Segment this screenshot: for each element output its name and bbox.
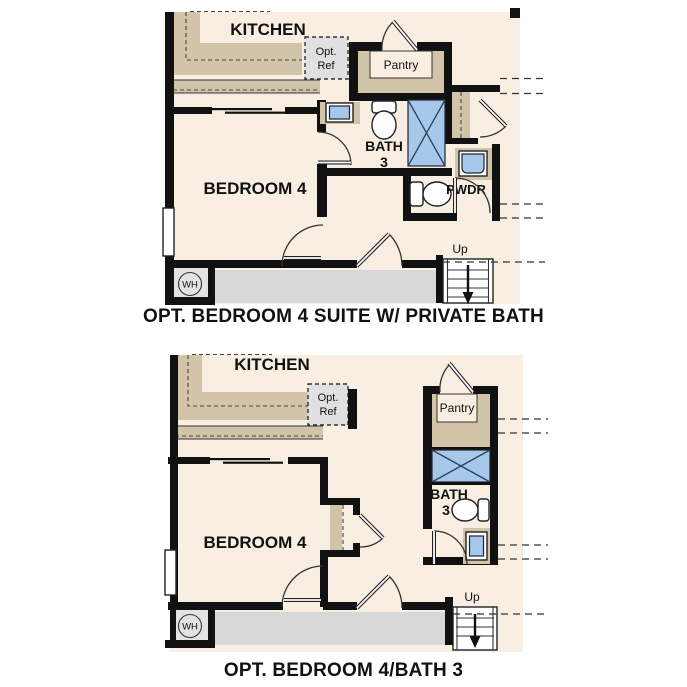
closet — [452, 92, 470, 138]
island-counter — [175, 426, 323, 439]
pantry: Pantry — [358, 51, 444, 93]
bedroom-window — [165, 550, 176, 595]
plan-bottom-drawing: Opt. Ref KITCHEN — [160, 352, 550, 654]
shower — [408, 100, 445, 166]
pantry: Pantry — [432, 394, 490, 450]
opt-ref-label: Opt. — [316, 46, 337, 58]
bath3-toilet — [452, 499, 489, 521]
opt-ref-box: Opt. Ref — [308, 384, 348, 425]
bath3-label: BATH — [365, 138, 403, 154]
up-label: Up — [452, 242, 468, 256]
kitchen-label: KITCHEN — [230, 20, 306, 39]
plan-bottom-title: OPT. BEDROOM 4/BATH 3 — [0, 660, 687, 682]
bedroom-label: BEDROOM 4 — [204, 179, 308, 198]
wh-label: WH — [182, 622, 198, 633]
wh-room: WH — [176, 610, 208, 640]
wh-label: WH — [182, 280, 198, 291]
plan-bottom: Opt. Ref KITCHEN — [160, 352, 550, 654]
bedroom-label: BEDROOM 4 — [204, 533, 308, 552]
stairs — [443, 259, 493, 304]
bath3-label: 3 — [380, 154, 388, 170]
hallway-strip — [215, 612, 445, 645]
opt-ref-box: Opt. Ref — [305, 37, 348, 79]
bath3-toilet — [372, 101, 396, 139]
bath3-sink — [320, 102, 360, 124]
opt-ref-label: Ref — [319, 406, 337, 418]
island-counter — [173, 80, 320, 93]
floorplan-page: Opt. Ref KITCHEN — [0, 0, 687, 687]
pwdr-sink — [455, 148, 492, 180]
bath3-label: 3 — [442, 502, 450, 518]
opt-ref-label: Ref — [317, 60, 335, 72]
shower — [432, 450, 490, 485]
pwdr-toilet — [410, 182, 451, 206]
plan-top-title: OPT. BEDROOM 4 SUITE W/ PRIVATE BATH — [0, 306, 687, 328]
hallway-strip — [215, 270, 436, 303]
bedroom-window — [163, 208, 174, 256]
closet — [330, 505, 343, 550]
up-label: Up — [464, 590, 480, 604]
wh-room: WH — [174, 268, 208, 297]
pantry-label: Pantry — [440, 401, 475, 415]
pantry-label: Pantry — [384, 58, 419, 72]
opt-ref-label: Opt. — [318, 392, 339, 404]
kitchen-label: KITCHEN — [234, 355, 310, 374]
plan-top: Opt. Ref KITCHEN — [160, 8, 550, 308]
plan-top-drawing: Opt. Ref KITCHEN — [160, 8, 550, 308]
